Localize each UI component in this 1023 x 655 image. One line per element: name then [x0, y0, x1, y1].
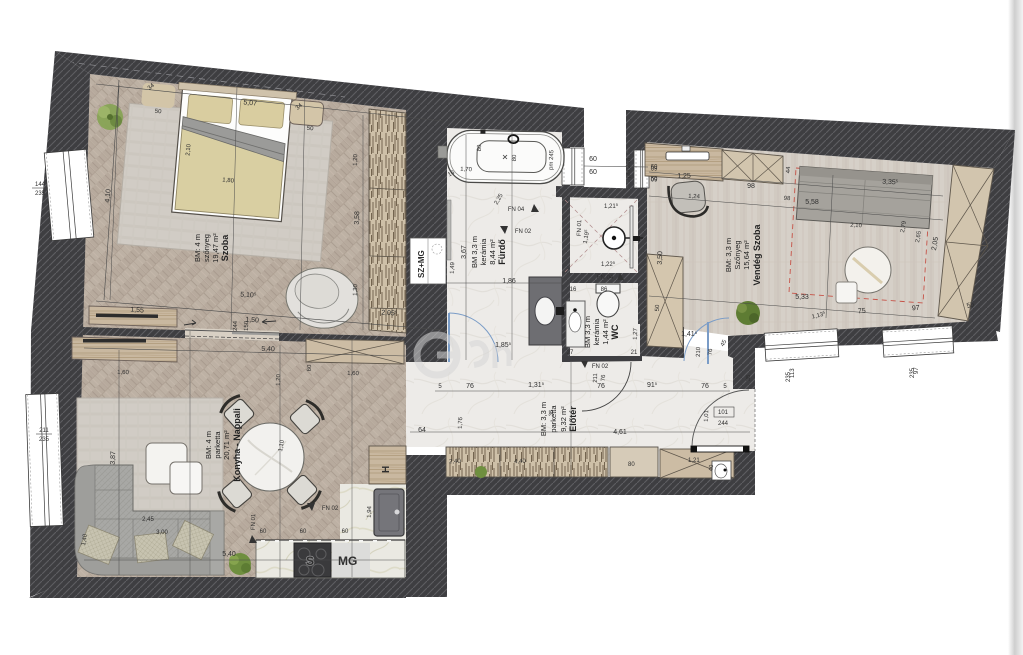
svg-text:1,20: 1,20 — [276, 373, 282, 386]
svg-text:60: 60 — [342, 529, 349, 535]
svg-text:27: 27 — [567, 350, 574, 356]
svg-text:50: 50 — [655, 304, 661, 312]
svg-text:60: 60 — [589, 156, 597, 163]
svg-text:76: 76 — [601, 374, 607, 382]
svg-text:44: 44 — [786, 166, 792, 174]
svg-text:19,47 m²: 19,47 m² — [211, 233, 220, 263]
svg-text:BM 3,3 m: BM 3,3 m — [470, 236, 479, 268]
svg-text:parketta: parketta — [549, 405, 558, 433]
svg-text:98: 98 — [784, 196, 792, 202]
svg-text:2,10: 2,10 — [850, 223, 863, 230]
svg-text:80: 80 — [512, 154, 518, 162]
svg-text:FN 04: FN 04 — [597, 275, 614, 281]
svg-text:FN 02: FN 02 — [322, 506, 339, 512]
svg-text:235: 235 — [786, 371, 792, 382]
svg-text:1,70: 1,70 — [460, 167, 473, 174]
svg-text:H: H — [381, 466, 392, 473]
svg-text:BM: 3,3 m: BM: 3,3 m — [539, 402, 548, 436]
svg-text:101: 101 — [718, 410, 729, 416]
svg-text:4,40: 4,40 — [514, 459, 527, 465]
svg-text:45: 45 — [720, 339, 729, 348]
svg-text:76: 76 — [708, 348, 714, 356]
svg-text:Konyha - Nappali: Konyha - Nappali — [232, 408, 242, 482]
svg-text:244: 244 — [233, 320, 239, 331]
svg-text:210: 210 — [696, 346, 702, 357]
svg-text:235: 235 — [910, 367, 916, 378]
svg-text:1,44 m²: 1,44 m² — [601, 319, 610, 345]
svg-text:1,415: 1,415 — [681, 330, 698, 339]
svg-text:5,58: 5,58 — [805, 199, 819, 206]
svg-text:21: 21 — [631, 350, 638, 356]
svg-text:20,71 m²: 20,71 m² — [222, 430, 231, 460]
svg-text:WC: WC — [610, 324, 620, 339]
svg-text:80: 80 — [628, 462, 635, 468]
svg-text:FN 04: FN 04 — [508, 207, 525, 213]
svg-text:5,40: 5,40 — [261, 346, 275, 353]
svg-text:60: 60 — [300, 529, 307, 535]
svg-text:97: 97 — [912, 305, 920, 313]
svg-text:kerámia: kerámia — [479, 238, 488, 266]
svg-text:S: S — [306, 554, 314, 568]
svg-text:1,01: 1,01 — [704, 409, 710, 422]
svg-text:09: 09 — [650, 174, 657, 180]
svg-text:kerámia: kerámia — [592, 318, 601, 346]
svg-text:75: 75 — [858, 308, 866, 316]
svg-text:FN 01: FN 01 — [577, 219, 584, 236]
svg-text:235: 235 — [39, 437, 50, 443]
svg-text:15,64 m²: 15,64 m² — [742, 240, 751, 270]
svg-text:FN 02: FN 02 — [515, 229, 532, 235]
svg-text:5,07: 5,07 — [243, 99, 257, 107]
svg-text:1,80: 1,80 — [222, 178, 235, 185]
svg-text:50: 50 — [154, 109, 162, 116]
svg-text:150: 150 — [244, 320, 250, 331]
svg-text:2,40: 2,40 — [449, 459, 462, 465]
svg-text:pm 245: pm 245 — [626, 157, 633, 178]
svg-text:4,10: 4,10 — [104, 189, 112, 203]
svg-text:3,00: 3,00 — [156, 530, 168, 536]
svg-text:szőnyeg: szőnyeg — [202, 234, 211, 262]
svg-text:5,40: 5,40 — [222, 551, 236, 558]
svg-text:76: 76 — [597, 383, 605, 390]
svg-text:Szőnyeg: Szőnyeg — [733, 240, 742, 269]
svg-text:BM: 4 m: BM: 4 m — [193, 234, 202, 262]
svg-text:1,30: 1,30 — [353, 283, 359, 296]
svg-text:35: 35 — [549, 409, 555, 417]
svg-text:211: 211 — [593, 372, 599, 382]
svg-text:1,27: 1,27 — [633, 327, 639, 340]
svg-text:1,86: 1,86 — [502, 278, 516, 285]
svg-text:MG: MG — [338, 554, 357, 568]
svg-text:64: 64 — [418, 427, 426, 434]
svg-text:3,50: 3,50 — [657, 251, 664, 265]
svg-text:Vendég Szoba: Vendég Szoba — [752, 223, 762, 285]
svg-text:235: 235 — [35, 191, 46, 197]
svg-text:35: 35 — [746, 374, 752, 382]
svg-text:SZ+MG: SZ+MG — [417, 250, 426, 278]
svg-text:40: 40 — [709, 464, 715, 472]
svg-text:80: 80 — [477, 144, 483, 152]
svg-text:parketta: parketta — [213, 431, 222, 459]
svg-text:1,21: 1,21 — [688, 458, 700, 464]
svg-text:1,55: 1,55 — [130, 307, 144, 315]
svg-text:60: 60 — [307, 364, 313, 372]
svg-text:Előtér: Előtér — [568, 406, 578, 432]
svg-text:5,33: 5,33 — [795, 294, 809, 301]
svg-text:9,32 m²: 9,32 m² — [559, 406, 568, 432]
svg-text:76: 76 — [466, 383, 474, 390]
svg-text:4,61: 4,61 — [613, 429, 627, 436]
svg-text:BM: 3,3 m: BM: 3,3 m — [724, 238, 733, 272]
svg-text:Szoba: Szoba — [220, 234, 230, 261]
svg-text:pm 245: pm 245 — [549, 149, 556, 170]
svg-text:1,60: 1,60 — [347, 371, 359, 377]
svg-text:BM: 4 m: BM: 4 m — [204, 431, 213, 459]
svg-text:8,44 m²: 8,44 m² — [488, 239, 497, 265]
svg-text:1,20: 1,20 — [353, 153, 359, 166]
svg-text:60: 60 — [589, 169, 597, 176]
svg-text:98: 98 — [747, 183, 755, 190]
svg-text:2,10: 2,10 — [186, 143, 193, 156]
svg-text:86: 86 — [601, 287, 608, 293]
svg-text:144: 144 — [35, 182, 46, 188]
svg-text:76: 76 — [701, 383, 709, 390]
svg-text:3,67: 3,67 — [461, 245, 468, 259]
svg-text:16: 16 — [570, 287, 577, 293]
svg-text:50: 50 — [306, 126, 314, 133]
svg-text:1,94: 1,94 — [367, 505, 373, 518]
svg-text:09: 09 — [650, 162, 657, 168]
svg-text:60: 60 — [260, 529, 267, 535]
svg-text:1,25: 1,25 — [677, 173, 691, 180]
svg-text:3,87: 3,87 — [110, 451, 117, 465]
svg-text:BM 3,3 m: BM 3,3 m — [583, 316, 592, 348]
svg-text:211: 211 — [39, 428, 49, 434]
svg-text:244: 244 — [718, 421, 729, 427]
svg-text:FN 01: FN 01 — [251, 513, 258, 530]
svg-text:2,45: 2,45 — [142, 517, 154, 523]
svg-text:FN 02: FN 02 — [592, 364, 609, 370]
svg-text:1,76: 1,76 — [458, 416, 464, 429]
svg-text:3,58: 3,58 — [354, 211, 361, 225]
svg-text:1,49: 1,49 — [450, 261, 456, 274]
svg-text:Fürdő: Fürdő — [497, 239, 507, 265]
